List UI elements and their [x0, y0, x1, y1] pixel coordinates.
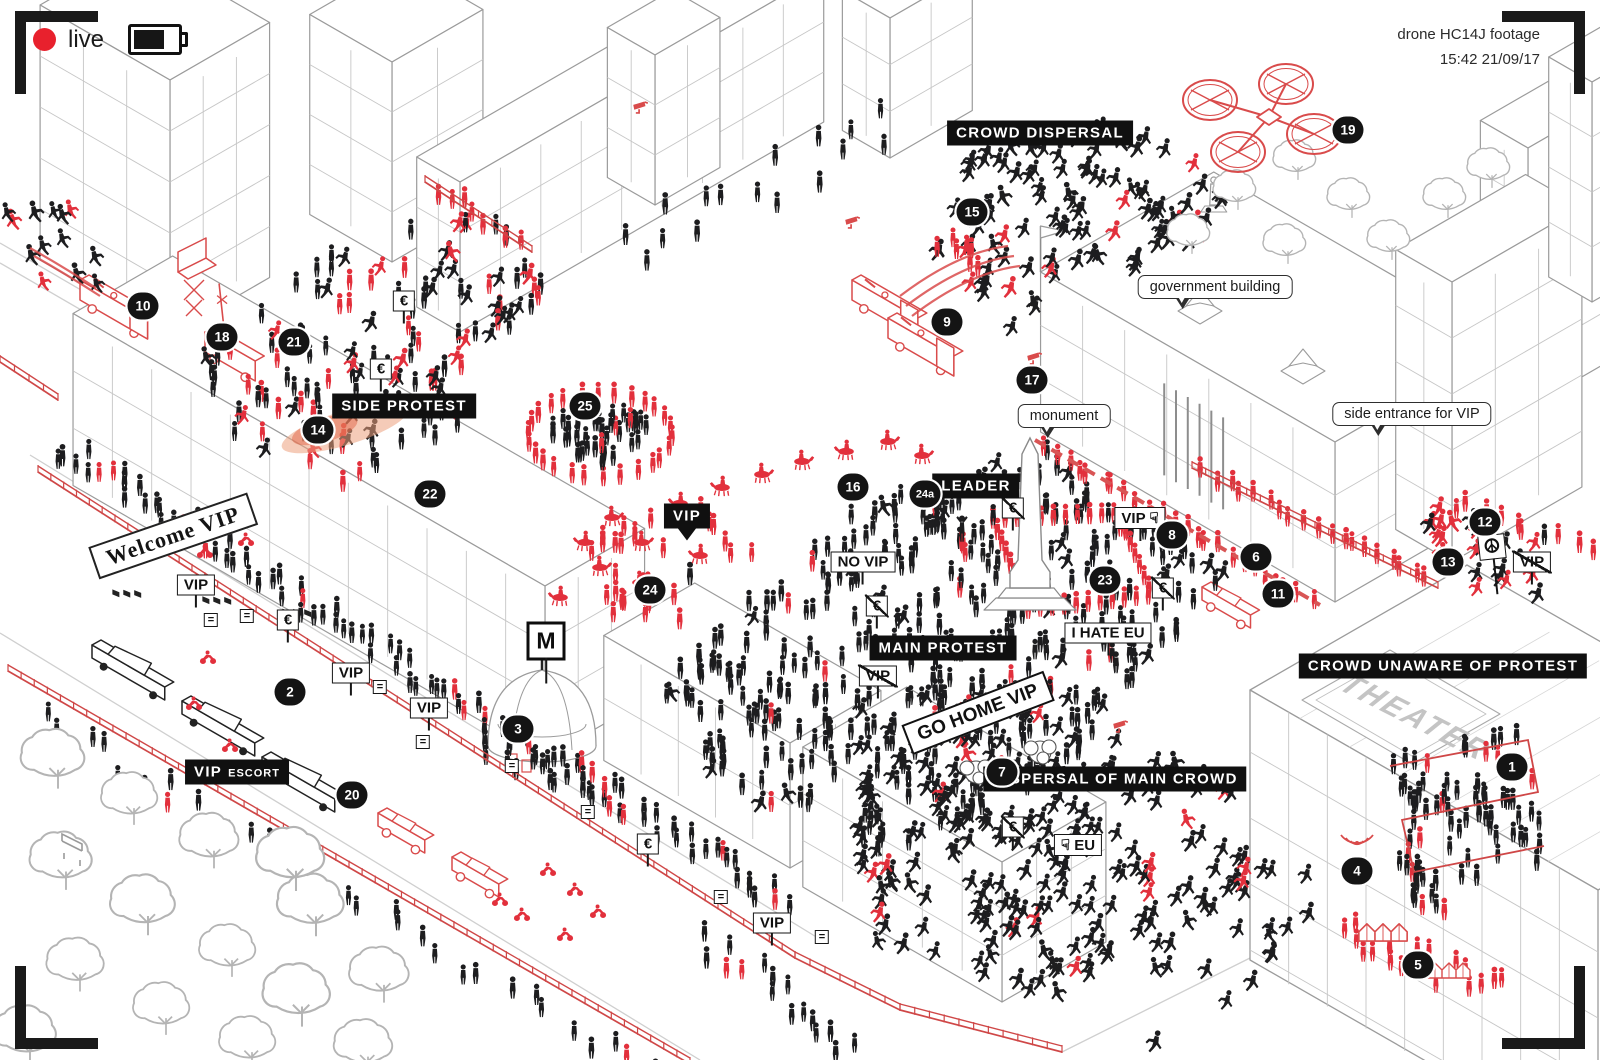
marker-24[interactable]: 24 [635, 577, 666, 604]
callout-monument: monument [1018, 404, 1111, 428]
cctv-camera-icon [845, 217, 860, 228]
footage-label: drone HC14J footage [1397, 22, 1540, 47]
timestamp: 15:42 21/09/17 [1397, 47, 1540, 72]
placard-vip: VIP [410, 698, 448, 719]
marker-17[interactable]: 17 [1017, 367, 1048, 394]
marker-11[interactable]: 11 [1263, 581, 1294, 608]
placard-sign: € [1002, 817, 1024, 838]
callout-government-building: government building [1138, 275, 1293, 299]
marker-6[interactable]: 6 [1241, 544, 1272, 571]
placard-no-vip: NO VIP [831, 552, 896, 573]
marker-1[interactable]: 1 [1497, 754, 1528, 781]
marker-7[interactable]: 7 [987, 759, 1018, 786]
marker-10[interactable]: 10 [128, 293, 159, 320]
marker-3[interactable]: 3 [503, 716, 534, 743]
placard-sign: = [714, 890, 728, 904]
placard-sign: € [370, 359, 392, 380]
battery-icon [128, 24, 182, 55]
label-leader: LEADER [932, 474, 1019, 499]
placard-sign: € [1002, 498, 1024, 519]
marker-25[interactable]: 25 [570, 393, 601, 420]
marker-24a[interactable]: 24a [910, 481, 941, 508]
placard-sign: € [277, 610, 299, 631]
label-main-protest: MAIN PROTEST [870, 636, 1017, 661]
placard-sign: ☮ [1477, 533, 1507, 561]
marker-20[interactable]: 20 [337, 782, 368, 809]
placard-sign: = [373, 680, 387, 694]
placard-vip: VIP [177, 575, 215, 596]
placard-sign: = [240, 609, 254, 623]
marker-4[interactable]: 4 [1342, 858, 1373, 885]
police-car [1202, 582, 1259, 629]
label-dispersal-of-main-crowd: DISPERSAL OF MAIN CROWD [983, 767, 1246, 792]
placard-sign: € [637, 834, 659, 855]
marker-9[interactable]: 9 [932, 309, 963, 336]
marker-8[interactable]: 8 [1157, 522, 1188, 549]
placard-vip: VIP [753, 913, 791, 934]
record-dot-icon [33, 28, 56, 51]
marker-22[interactable]: 22 [415, 481, 446, 508]
cctv-camera-icon [1027, 353, 1042, 364]
placard-sign: = [505, 759, 519, 773]
marker-2[interactable]: 2 [275, 679, 306, 706]
marker-23[interactable]: 23 [1090, 567, 1121, 594]
marker-21[interactable]: 21 [279, 329, 310, 356]
label-side-protest: SIDE PROTEST [332, 394, 476, 419]
car-red [452, 852, 508, 898]
placard-vip: VIP ☟ [1114, 507, 1165, 529]
placard-sign: € [1152, 578, 1174, 599]
signal-icon [1355, 841, 1359, 845]
car-red [378, 808, 434, 854]
viewfinder-corner-bl [15, 966, 98, 1049]
marker-16[interactable]: 16 [838, 474, 869, 501]
placard-sign: = [204, 613, 218, 627]
placard-sign: = [416, 735, 430, 749]
metro-sign: M [527, 622, 566, 661]
placard-vip: VIP [1513, 552, 1551, 573]
live-indicator: live [33, 24, 182, 55]
label-crowd-dispersal: CROWD DISPERSAL [947, 121, 1133, 146]
label-vip: VIP [664, 504, 710, 529]
limo [92, 589, 174, 700]
marker-15[interactable]: 15 [957, 199, 988, 226]
label-crowd-unaware-of-protest: CROWD UNAWARE OF PROTEST [1299, 654, 1587, 679]
placard-vip: VIP [332, 663, 370, 684]
placard-sign: = [581, 805, 595, 819]
marker-18[interactable]: 18 [207, 324, 238, 351]
placard-vip: VIP [859, 666, 897, 687]
viewfinder-corner-br [1502, 966, 1585, 1049]
label-vip-escort: VIPESCORT [185, 760, 289, 785]
callout-side-entrance-for-vip: side entrance for VIP [1332, 402, 1491, 426]
footage-meta: drone HC14J footage 15:42 21/09/17 [1397, 22, 1540, 72]
marker-19[interactable]: 19 [1333, 117, 1364, 144]
placard-sign: € [393, 291, 415, 312]
drone-footage-view: THEATER CROWD DISPERSALSIDE PROTESTLEADE… [0, 0, 1600, 1060]
marker-13[interactable]: 13 [1433, 549, 1464, 576]
placard-eu: ☟ EU [1054, 834, 1102, 856]
live-label: live [68, 26, 104, 54]
placard-sign: € [866, 596, 888, 617]
tower-mid [607, 0, 720, 205]
placard-i-hate-eu: I HATE EU [1064, 623, 1151, 644]
buildings-layer: THEATER [40, 0, 1600, 1060]
marker-5[interactable]: 5 [1403, 952, 1434, 979]
battery-tip [179, 32, 188, 47]
placard-sign: = [815, 930, 829, 944]
battery-fill [134, 30, 164, 49]
marker-14[interactable]: 14 [303, 417, 334, 444]
drone-19 [1183, 64, 1341, 172]
marker-12[interactable]: 12 [1470, 509, 1501, 536]
